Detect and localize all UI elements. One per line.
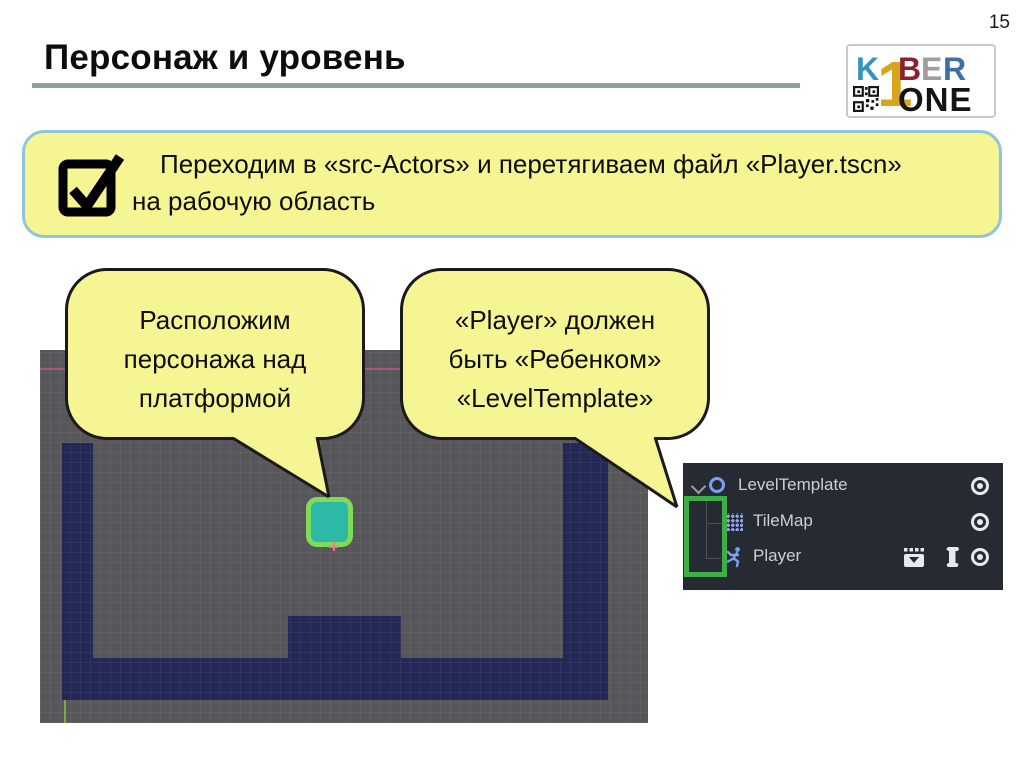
chevron-down-icon[interactable] — [691, 479, 707, 495]
title-underline — [32, 83, 800, 88]
bubble-right-line-3: «LevelTemplate» — [403, 379, 707, 418]
eye-icon[interactable] — [971, 477, 989, 495]
speech-bubble-right: «Player» должен быть «Ребенком» «LevelTe… — [400, 268, 710, 440]
instanced-scene-icon[interactable] — [902, 546, 926, 570]
tilemap-floor — [62, 658, 608, 700]
page-number: 15 — [989, 12, 1010, 34]
speech-tail-right — [565, 437, 685, 511]
instruction-text: Переходим в «src-Actors» и перетягиваем … — [132, 146, 992, 220]
tilemap-icon — [725, 513, 743, 531]
highlight-rectangle — [684, 496, 727, 577]
tree-row-tilemap[interactable]: TileMap — [683, 506, 1003, 540]
kiberone-logo: K 1 B E R ONE — [846, 44, 996, 118]
instruction-line-1: Переходим в «src-Actors» и перетягиваем … — [160, 149, 902, 179]
bubble-right-line-2: быть «Ребенком» — [403, 340, 707, 379]
qr-code-icon — [853, 86, 879, 112]
speech-tail-left — [225, 437, 340, 501]
tree-label: Player — [753, 546, 801, 566]
logo-word-one: ONE — [898, 83, 973, 116]
checkbox-check-icon — [56, 148, 126, 218]
kinematicbody2d-icon — [724, 546, 744, 568]
bubble-left-line-2: персонажа над — [68, 340, 362, 379]
instruction-line-2: на рабочую область — [132, 186, 375, 216]
script-icon[interactable] — [942, 545, 962, 569]
player-sprite[interactable] — [306, 497, 353, 547]
bubble-left-line-1: Расположим — [68, 301, 362, 340]
speech-bubble-left: Расположим персонажа над платформой — [65, 268, 365, 440]
bubble-right-line-1: «Player» должен — [403, 301, 707, 340]
scene-tree-panel: LevelTemplate TileMap Player — [683, 463, 1003, 590]
tilemap-platform — [288, 616, 401, 658]
tree-label: TileMap — [753, 511, 813, 531]
eye-icon[interactable] — [971, 548, 989, 566]
tree-row-player[interactable]: Player — [683, 541, 1003, 575]
node2d-icon — [709, 477, 725, 493]
tree-label: LevelTemplate — [738, 475, 848, 495]
bubble-left-line-3: платформой — [68, 379, 362, 418]
page-title: Персонаж и уровень — [44, 38, 406, 78]
logo-letter-k: K — [856, 53, 879, 85]
slide: 15 Персонаж и уровень K 1 B E R ONE — [0, 0, 1024, 767]
eye-icon[interactable] — [971, 513, 989, 531]
player-origin-cross-icon — [329, 542, 338, 551]
tree-row-leveltemplate[interactable]: LevelTemplate — [683, 470, 1003, 504]
